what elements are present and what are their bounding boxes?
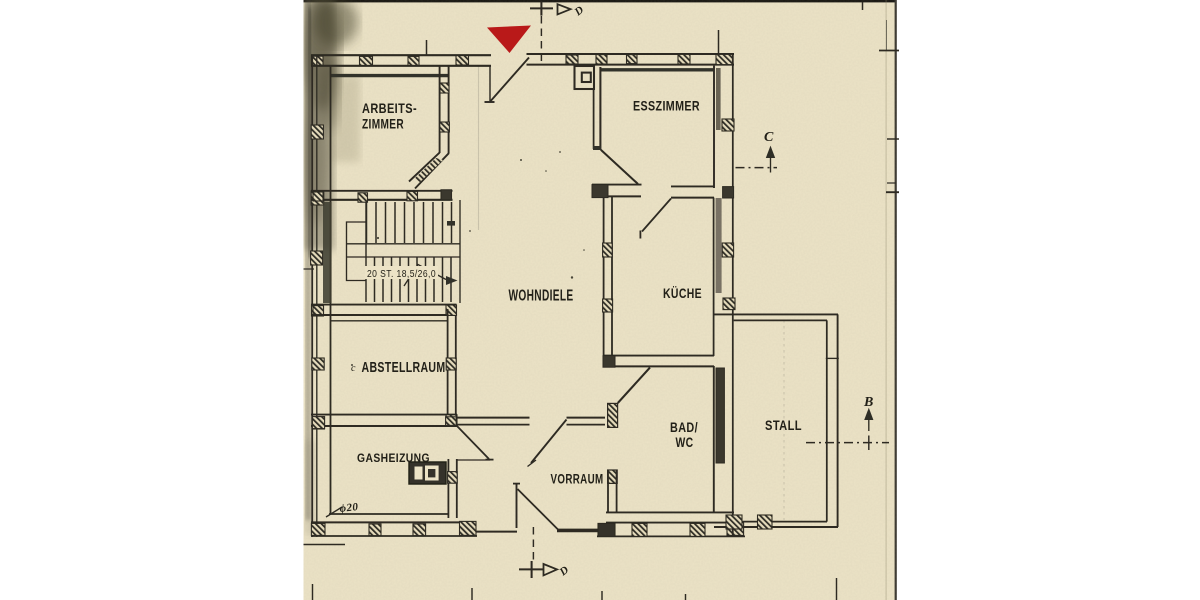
svg-text:ϕ20: ϕ20 — [339, 501, 359, 515]
svg-text:GASHEIZUNG: GASHEIZUNG — [357, 451, 430, 465]
svg-text:ESSZIMMER: ESSZIMMER — [633, 98, 700, 114]
svg-text:KÜCHE: KÜCHE — [663, 285, 702, 301]
svg-text:VORRAUM: VORRAUM — [551, 472, 604, 487]
svg-text:20 ST. 18,5/26,0: 20 ST. 18,5/26,0 — [367, 269, 436, 280]
svg-text:C: C — [764, 130, 774, 145]
svg-text:ZIMMER: ZIMMER — [362, 116, 404, 132]
svg-text:BAD/: BAD/ — [670, 419, 698, 435]
svg-text:ABSTELLRAUM: ABSTELLRAUM — [362, 359, 446, 376]
svg-text:WOHNDIELE: WOHNDIELE — [509, 288, 574, 305]
svg-text:WC: WC — [676, 434, 694, 450]
svg-text:STALL: STALL — [765, 417, 802, 433]
svg-text:ARBEITS-: ARBEITS- — [362, 100, 417, 116]
svg-text:B: B — [863, 395, 874, 410]
